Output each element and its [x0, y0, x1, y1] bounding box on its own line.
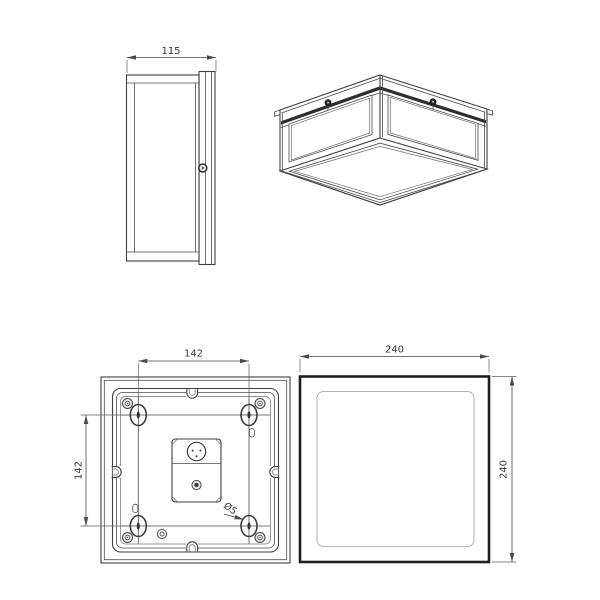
- terminal-entry: [187, 442, 205, 460]
- cable-notch-bottom: [186, 541, 198, 552]
- perspective-view: [275, 75, 493, 205]
- dimension-label-front-height: 240: [499, 460, 510, 479]
- cable-notch-right: [269, 466, 280, 478]
- front-view-height-dimension: 240: [492, 377, 517, 563]
- junction-box-screw-icon: [192, 480, 201, 489]
- side-view: 115: [127, 46, 217, 265]
- front-frame: [300, 377, 489, 563]
- back-plate-view: 142 142 Ø5: [74, 349, 291, 564]
- cable-notch-top: [186, 389, 198, 400]
- front-view-width-dimension: 240: [300, 345, 489, 373]
- front-view: 240 240: [300, 345, 517, 563]
- dimension-label-mount-spacing-horizontal: 142: [184, 349, 203, 360]
- side-view-body: [127, 75, 200, 261]
- dimension-label-front-width: 240: [385, 345, 404, 356]
- cable-notch-left: [112, 466, 123, 478]
- side-view-screw-icon: [199, 164, 207, 172]
- technical-drawing-canvas: 115: [0, 0, 600, 600]
- side-view-width-dimension: 115: [127, 46, 216, 73]
- dimension-label-mount-spacing-vertical: 142: [74, 461, 85, 480]
- junction-box: [172, 439, 221, 502]
- dimension-label-side-width: 115: [161, 46, 180, 57]
